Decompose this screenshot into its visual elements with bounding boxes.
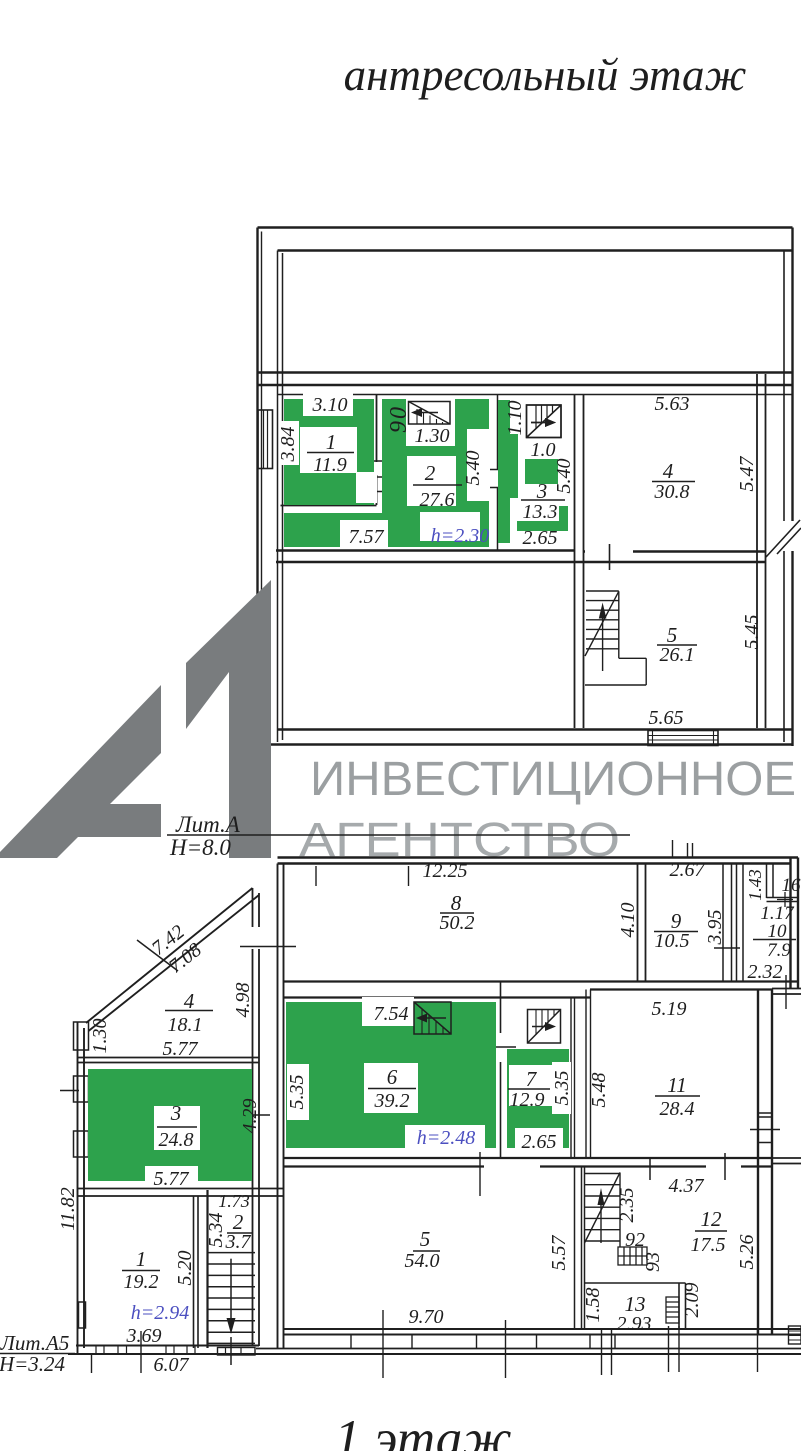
svg-text:4.37: 4.37 xyxy=(669,1175,705,1197)
svg-text:2.93: 2.93 xyxy=(617,1313,652,1335)
svg-text:2.65: 2.65 xyxy=(523,527,558,549)
svg-text:2: 2 xyxy=(425,461,436,485)
svg-text:12.9: 12.9 xyxy=(510,1089,545,1111)
svg-text:5.77: 5.77 xyxy=(154,1168,190,1190)
svg-text:1.30: 1.30 xyxy=(415,425,450,447)
svg-text:5.77: 5.77 xyxy=(163,1038,199,1060)
svg-text:3.10: 3.10 xyxy=(312,394,348,416)
svg-text:5.65: 5.65 xyxy=(649,707,684,729)
svg-text:28.4: 28.4 xyxy=(660,1098,695,1120)
svg-text:5.45: 5.45 xyxy=(741,615,763,650)
svg-text:2.65: 2.65 xyxy=(522,1131,557,1153)
svg-text:5.48: 5.48 xyxy=(588,1073,610,1108)
svg-text:93: 93 xyxy=(642,1252,664,1272)
svg-text:3.69: 3.69 xyxy=(126,1325,162,1347)
svg-text:6: 6 xyxy=(387,1065,398,1089)
svg-text:h=2.48: h=2.48 xyxy=(417,1127,476,1149)
svg-text:24.8: 24.8 xyxy=(159,1129,194,1151)
svg-text:5.35: 5.35 xyxy=(286,1075,308,1110)
svg-text:5.20: 5.20 xyxy=(174,1251,196,1286)
svg-text:Н=8.0: Н=8.0 xyxy=(169,835,231,860)
svg-text:1: 1 xyxy=(136,1247,147,1271)
svg-text:h=2.94: h=2.94 xyxy=(131,1302,190,1324)
svg-text:1.0: 1.0 xyxy=(531,439,556,461)
svg-text:4: 4 xyxy=(184,989,195,1013)
svg-text:3.7: 3.7 xyxy=(225,1231,252,1253)
svg-text:16: 16 xyxy=(782,875,801,896)
svg-text:1.43: 1.43 xyxy=(745,869,765,901)
svg-text:13.3: 13.3 xyxy=(523,501,558,523)
svg-text:7.57: 7.57 xyxy=(349,526,385,548)
svg-text:антресольный этаж: антресольный этаж xyxy=(344,50,747,100)
svg-text:Лит.А: Лит.А xyxy=(175,812,241,837)
svg-text:19.2: 19.2 xyxy=(124,1271,159,1293)
svg-text:2.67: 2.67 xyxy=(670,859,706,881)
svg-text:26.1: 26.1 xyxy=(660,644,695,666)
svg-text:27.6: 27.6 xyxy=(420,489,455,511)
svg-text:3.84: 3.84 xyxy=(277,427,299,463)
svg-text:1: 1 xyxy=(326,430,337,454)
svg-text:4.29: 4.29 xyxy=(239,1099,261,1134)
svg-text:2.35: 2.35 xyxy=(616,1188,638,1223)
svg-text:92: 92 xyxy=(625,1229,645,1251)
svg-text:17.5: 17.5 xyxy=(691,1234,726,1256)
svg-text:5.26: 5.26 xyxy=(736,1235,758,1270)
svg-text:1.10: 1.10 xyxy=(504,401,526,436)
svg-text:50.2: 50.2 xyxy=(440,912,475,934)
svg-text:5.57: 5.57 xyxy=(548,1235,570,1271)
svg-text:7.54: 7.54 xyxy=(374,1003,409,1025)
svg-text:5.35: 5.35 xyxy=(551,1071,573,1106)
svg-text:1.30: 1.30 xyxy=(89,1019,111,1054)
svg-text:10.5: 10.5 xyxy=(655,930,690,952)
svg-text:Н=3.24: Н=3.24 xyxy=(0,1352,66,1376)
svg-text:54.0: 54.0 xyxy=(405,1250,440,1272)
svg-text:5: 5 xyxy=(420,1227,431,1251)
svg-text:5.63: 5.63 xyxy=(655,393,690,415)
svg-text:h=2.30: h=2.30 xyxy=(431,525,490,547)
svg-text:30.8: 30.8 xyxy=(654,481,690,503)
svg-text:4.10: 4.10 xyxy=(617,903,639,938)
svg-text:5.47: 5.47 xyxy=(736,456,758,492)
svg-text:9.70: 9.70 xyxy=(409,1306,444,1328)
svg-text:5.34: 5.34 xyxy=(205,1213,227,1248)
svg-text:90: 90 xyxy=(386,405,412,433)
svg-text:6.07: 6.07 xyxy=(154,1354,190,1376)
svg-text:18.1: 18.1 xyxy=(168,1014,203,1036)
svg-text:5.19: 5.19 xyxy=(652,998,687,1020)
svg-text:1.73: 1.73 xyxy=(218,1191,250,1211)
svg-text:11.9: 11.9 xyxy=(313,454,347,476)
svg-text:2.32: 2.32 xyxy=(748,961,783,983)
svg-text:ИНВЕСТИЦИОННОЕ: ИНВЕСТИЦИОННОЕ xyxy=(310,753,796,806)
svg-text:12: 12 xyxy=(701,1207,723,1231)
svg-text:4.98: 4.98 xyxy=(232,983,254,1018)
svg-text:7: 7 xyxy=(526,1067,538,1091)
svg-text:3.95: 3.95 xyxy=(704,910,726,946)
svg-text:5.40: 5.40 xyxy=(553,459,575,494)
svg-text:11.82: 11.82 xyxy=(57,1187,79,1231)
svg-text:1 этаж: 1 этаж xyxy=(334,1410,511,1451)
svg-text:39.2: 39.2 xyxy=(374,1090,410,1112)
svg-text:4: 4 xyxy=(663,459,674,483)
svg-text:11: 11 xyxy=(667,1073,686,1097)
svg-text:5.40: 5.40 xyxy=(462,451,484,486)
svg-text:12.25: 12.25 xyxy=(423,860,468,882)
svg-text:2.09: 2.09 xyxy=(681,1283,703,1318)
svg-text:7.9: 7.9 xyxy=(767,940,791,961)
svg-text:3: 3 xyxy=(170,1101,182,1125)
svg-text:1.58: 1.58 xyxy=(582,1288,604,1323)
